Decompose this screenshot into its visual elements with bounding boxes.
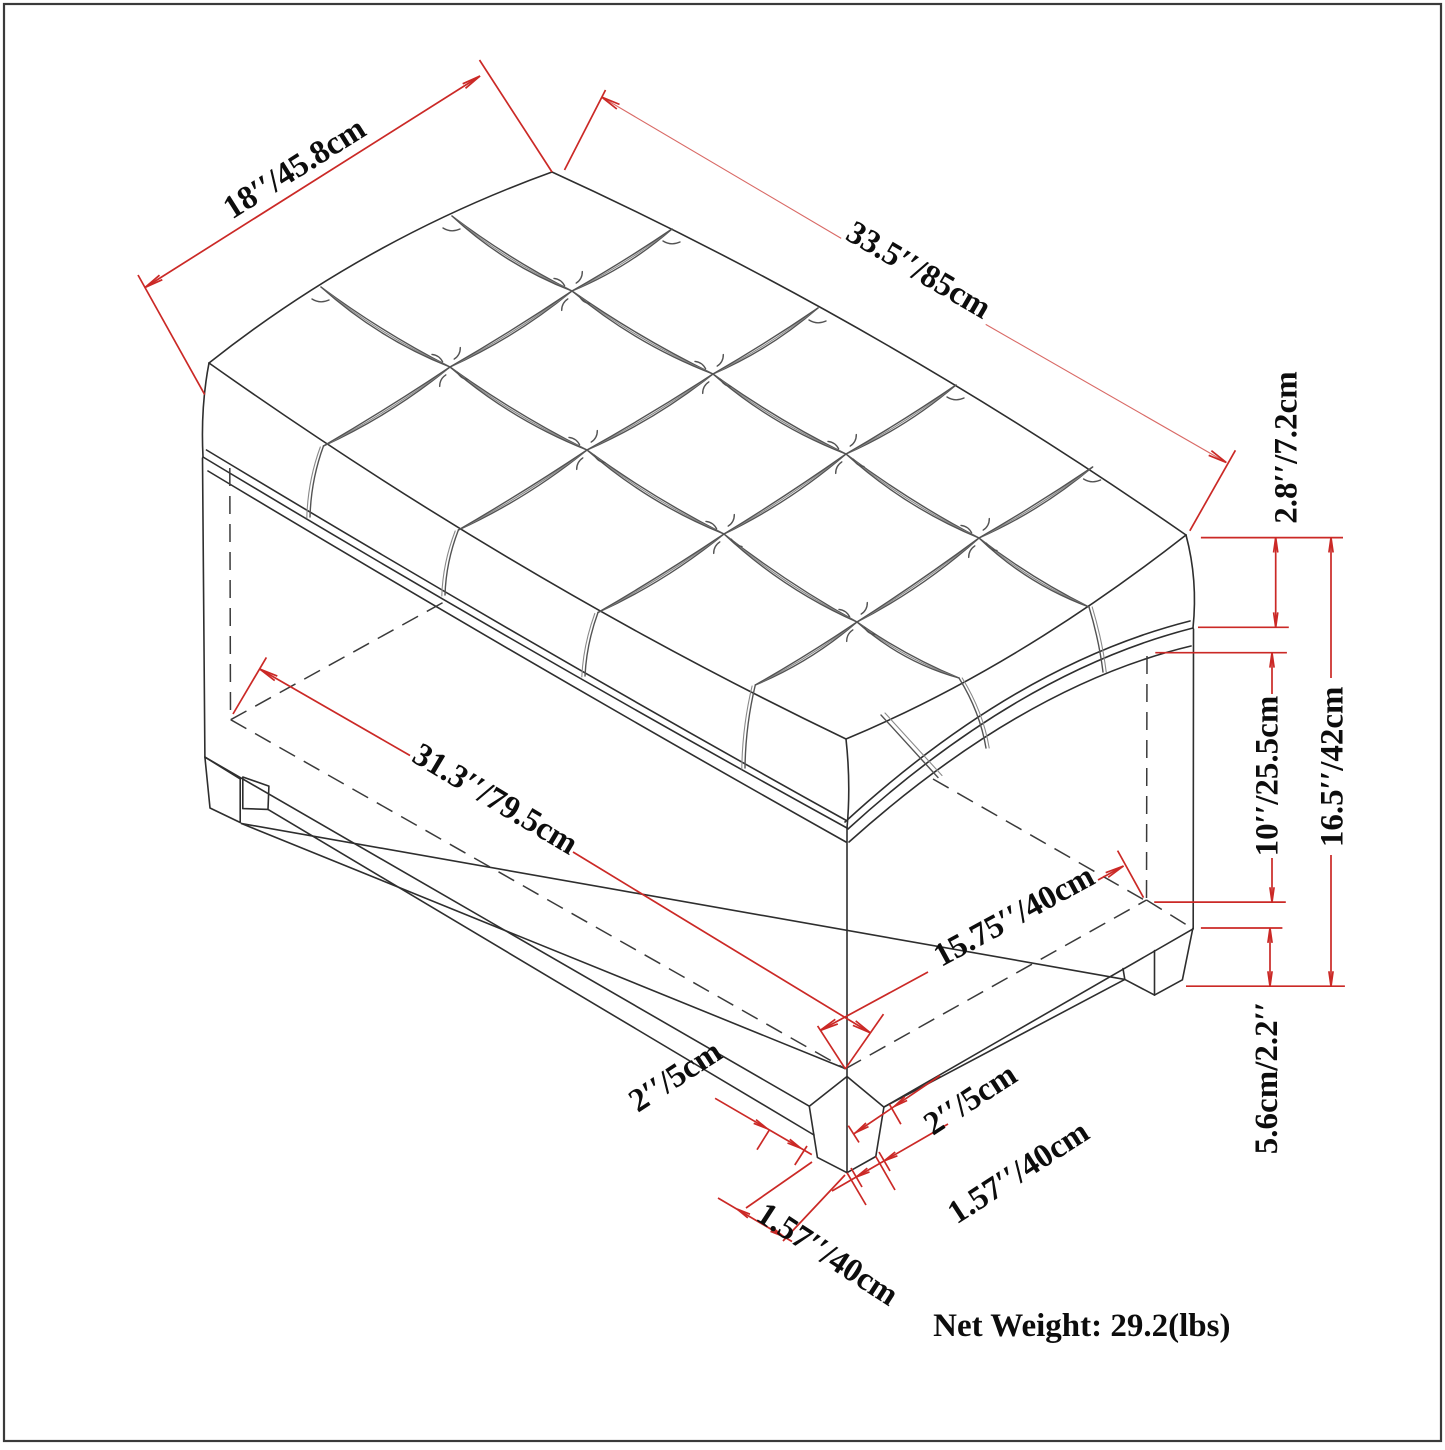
- svg-text:16.5′′/42cm: 16.5′′/42cm: [1314, 686, 1350, 847]
- svg-text:Net Weight: 29.2(lbs): Net Weight: 29.2(lbs): [933, 1308, 1230, 1344]
- svg-text:2.8′′/7.2cm: 2.8′′/7.2cm: [1269, 371, 1305, 523]
- svg-text:5.6cm/2.2′′: 5.6cm/2.2′′: [1249, 1002, 1285, 1154]
- svg-text:10′′/25.5cm: 10′′/25.5cm: [1250, 696, 1286, 857]
